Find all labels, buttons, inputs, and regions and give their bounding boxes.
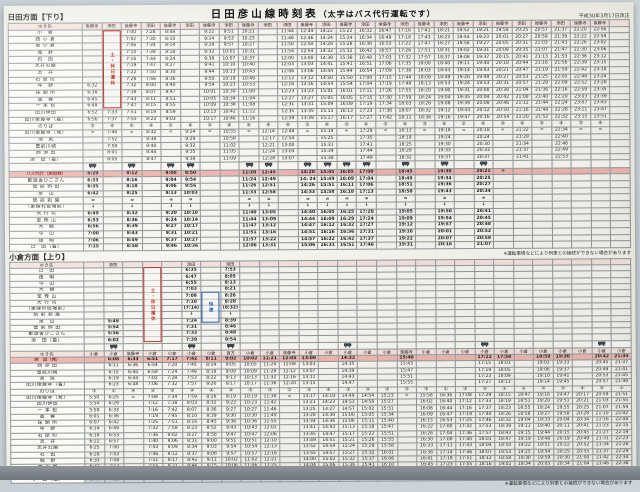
time-cell: 16:31 <box>318 243 338 250</box>
time-cell: 21:07 <box>592 404 612 410</box>
time-cell: 19:41 <box>553 373 573 379</box>
time-cell <box>220 162 240 169</box>
time-cell <box>493 161 513 168</box>
time-cell: 21:16 <box>592 417 612 423</box>
time-cell: 20:07 <box>435 235 455 242</box>
time-cell: 12:06 <box>260 431 280 437</box>
time-cell: 10:13 <box>222 476 242 482</box>
time-cell: 22:20 <box>551 94 571 101</box>
time-cell: 10:27 <box>181 237 201 244</box>
time-cell: 11:55 <box>260 419 280 425</box>
bus-icon <box>317 162 337 169</box>
bus-icon <box>435 161 455 168</box>
time-cell: 14:49 <box>338 393 358 399</box>
time-cell: 19:30 <box>435 168 455 175</box>
time-cell: 19:58 <box>553 411 573 417</box>
time-cell: 19:36 <box>435 182 455 189</box>
bus-icon <box>122 163 142 170</box>
time-cell: 10:03 <box>181 190 201 197</box>
time-cell: 22:05 <box>551 73 571 80</box>
time-cell: 15:24 <box>336 35 356 42</box>
time-cell: 16:05 <box>337 169 357 176</box>
time-cell: 19:22 <box>396 235 416 242</box>
time-cell: 21:51 <box>593 467 613 473</box>
time-cell: 14:57 <box>298 236 318 243</box>
time-cell: 17:27 <box>357 222 377 229</box>
bus-icon <box>161 163 181 170</box>
connection-note-mid: ※運転事情などにより列車との接続ができない場合があります <box>503 250 631 257</box>
time-cell <box>611 241 631 248</box>
time-cell: 13:00 <box>297 55 317 62</box>
time-cell: 19:50 <box>435 208 455 215</box>
time-cell: 14:33 <box>298 189 318 196</box>
time-cell: 15:45 <box>317 169 337 176</box>
time-cell: 17:00 <box>357 169 377 176</box>
time-cell: 16:22 <box>318 236 338 243</box>
time-cell: 15:40 <box>397 355 417 361</box>
time-cell: 13:27 <box>297 95 317 102</box>
time-cell <box>142 244 162 251</box>
time-cell: 15:50 <box>336 75 356 82</box>
time-cell: 18:51 <box>396 182 416 189</box>
time-cell: 12:49 <box>259 176 279 183</box>
time-cell: 15:06 <box>298 243 318 250</box>
time-cell: 22:58 <box>590 33 610 40</box>
time-cell: 20:58 <box>474 235 494 242</box>
time-cell: 13:45 <box>300 431 320 437</box>
time-cell: 13:11 <box>299 374 319 380</box>
time-cell: 23:51 <box>591 113 611 120</box>
time-cell: 19:55 <box>553 404 573 410</box>
time-cell: 22:40 <box>552 134 572 141</box>
down-direction-label: 日田方面【下り】 <box>8 12 68 23</box>
time-cell: 19:09 <box>495 474 515 480</box>
time-cell: 16:09 <box>318 216 338 223</box>
time-cell: 23:24 <box>590 73 610 80</box>
time-cell: 16:09 <box>337 176 357 183</box>
time-cell <box>376 161 396 168</box>
time-cell: 15:51 <box>318 182 338 189</box>
time-cell: 20:30 <box>554 455 574 461</box>
time-cell: 16:12 <box>318 223 338 230</box>
time-cell <box>455 242 475 249</box>
time-cell <box>124 476 144 482</box>
title-text: 日田彦山線時刻表 <box>211 8 319 21</box>
time-cell <box>103 244 123 251</box>
time-cell: 16:05 <box>337 95 357 102</box>
time-cell: 15:48 <box>358 475 378 481</box>
time-cell: 14:51 <box>298 229 318 236</box>
time-cell: 11:57 <box>240 236 260 243</box>
time-cell: 20:41 <box>474 208 494 215</box>
time-cell <box>416 242 436 249</box>
time-cell: 12:58 <box>259 189 279 196</box>
time-cell: 13:07 <box>299 368 319 374</box>
up-timetable-wrapper: ゆき先添田添田添田日 田6:357:53夜 明6:478:05今 山6:558:… <box>9 258 632 484</box>
time-cell: 8:28 <box>163 476 183 482</box>
time-cell: 18:58 <box>396 189 416 196</box>
time-cell: 16:11 <box>337 182 357 189</box>
time-cell: 13:05 <box>259 210 279 217</box>
time-cell: 13:12 <box>297 75 317 82</box>
time-cell: 20:42 <box>592 354 612 360</box>
time-cell: 16:42 <box>337 236 357 243</box>
time-cell: 20:45 <box>474 215 494 222</box>
station-label: 小 倉（着） <box>11 477 85 484</box>
time-cell: 20:21 <box>474 168 494 175</box>
time-cell: 14:26 <box>298 183 318 190</box>
time-cell: 14: 24 <box>298 176 318 183</box>
time-cell: 8:58 <box>123 244 143 251</box>
time-cell: 17:58 <box>494 354 514 360</box>
time-cell: 21:07 <box>474 242 494 249</box>
time-cell: 12:10 <box>261 438 281 444</box>
time-cell: 21:39 <box>551 33 571 40</box>
time-cell: 15:13 <box>319 475 339 481</box>
time-cell: 15:21 <box>339 437 359 443</box>
down-timetable: ゆき先後藤寺添田後藤寺添田後藤寺添田後藤寺添田後藤寺添田添田後藤寺添田後藤寺添田… <box>8 19 631 252</box>
time-cell: 17:04 <box>357 175 377 182</box>
time-cell: 21:27 <box>592 429 612 435</box>
time-cell: 11:20 <box>239 170 259 177</box>
time-cell: 11:24 <box>239 176 259 183</box>
time-cell: 21:34 <box>612 354 632 360</box>
service-notice-holiday-suspended: 土・休日運休 <box>102 30 121 109</box>
time-cell: 15:06 <box>339 418 359 424</box>
time-cell: 13:09 <box>259 216 279 223</box>
time-cell: 14:20 <box>298 169 318 176</box>
time-cell <box>591 241 611 248</box>
time-cell: 18:45 <box>396 169 416 176</box>
time-cell: 16:36 <box>337 229 357 236</box>
time-cell <box>103 163 123 170</box>
down-timetable-wrapper: ゆき先後藤寺添田後藤寺添田後藤寺添田後藤寺添田後藤寺添田添田後藤寺添田後藤寺添田… <box>8 19 631 252</box>
time-cell: 12:30 <box>261 469 281 475</box>
time-cell: 19:09 <box>396 215 416 222</box>
time-cell: 11:13 <box>241 476 261 482</box>
connection-note-bottom: ※運転事情などにより列車との接続ができない場合があります <box>505 480 633 487</box>
time-cell: 10:17 <box>181 223 201 230</box>
time-cell <box>572 241 592 248</box>
time-cell: 12:44 <box>297 28 317 35</box>
time-cell: 10:02 <box>240 356 260 362</box>
time-cell: 10:14 <box>181 217 201 224</box>
time-cell: 12:05 <box>280 356 300 362</box>
time-cell: 21:53 <box>551 53 571 60</box>
title-note: （太字はバス代行運転です） <box>319 9 436 19</box>
time-cell: 20:04 <box>553 417 573 423</box>
time-cell: 18:59 <box>533 354 553 360</box>
time-cell: 15:38 <box>336 55 356 62</box>
time-cell: 19:57 <box>435 222 455 229</box>
time-cell: 13:28 <box>299 412 319 418</box>
time-cell: 14:09 <box>300 469 320 475</box>
time-cell <box>377 242 397 249</box>
time-cell: 23:39 <box>590 93 610 100</box>
time-cell: 11:47 <box>240 223 260 230</box>
time-cell: 15:41 <box>339 469 359 475</box>
time-cell: 22:56 <box>590 26 610 33</box>
time-cell: 11:32 <box>260 375 280 381</box>
time-cell: 20:48 <box>474 222 494 229</box>
time-cell: 19:41 <box>515 474 535 480</box>
time-cell: 21:31 <box>593 436 613 442</box>
time-cell: 20:49 <box>592 366 612 372</box>
time-cell: 11:49 <box>260 412 280 418</box>
time-cell: 13:31 <box>259 243 279 250</box>
time-cell: 19:37 <box>553 367 573 373</box>
time-cell: 13:55 <box>300 450 320 456</box>
time-cell: 14:32 <box>338 355 358 361</box>
time-cell: 10:21 <box>181 230 201 237</box>
time-cell: 15:43 <box>339 475 359 481</box>
time-cell: 19:12 <box>396 222 416 229</box>
time-cell: 13:34 <box>299 419 319 425</box>
time-cell: 12:21 <box>259 142 279 149</box>
time-cell: 20:59 <box>592 392 612 398</box>
time-cell: 19:34 <box>435 175 455 182</box>
time-cell: 15:27 <box>339 450 359 456</box>
time-cell: 22:32 <box>552 114 572 121</box>
time-cell: 16:32 <box>337 222 357 229</box>
time-cell: 15:17 <box>339 431 359 437</box>
time-cell: 20:15 <box>553 430 573 436</box>
time-cell: 20:27 <box>474 181 494 188</box>
time-cell: 20:10 <box>534 474 554 480</box>
up-timetable: ゆき先添田添田添田日 田6:357:53夜 明6:478:05今 山6:558:… <box>9 258 632 484</box>
time-cell: 19:05 <box>396 209 416 216</box>
time-cell: 20:41 <box>554 474 574 480</box>
time-cell: 16:51 <box>337 242 357 249</box>
time-cell: 13:22 <box>259 236 279 243</box>
time-cell: 11:21 <box>260 356 280 362</box>
time-cell: 17:46 <box>357 242 377 249</box>
time-cell: 14:43 <box>338 374 358 380</box>
time-cell: 10:36 <box>181 243 201 250</box>
time-cell: 12:51 <box>259 183 279 190</box>
time-cell: 16:25 <box>337 209 357 216</box>
time-cell: 11:26 <box>239 183 259 190</box>
time-cell: 17:12 <box>475 354 495 360</box>
time-cell: 20:01 <box>435 229 455 236</box>
time-cell: 20:25 <box>474 175 494 182</box>
time-cell: 13:00 <box>299 356 319 362</box>
time-cell: 21:10 <box>592 410 612 416</box>
time-cell: 21:37 <box>551 27 571 34</box>
time-cell: 22:45 <box>612 473 632 479</box>
time-cell: 12:32 <box>261 475 281 481</box>
time-cell: 20:25 <box>554 448 574 454</box>
time-cell: 19:30 <box>553 354 573 360</box>
time-cell: 14:00 <box>300 456 320 462</box>
time-cell: 19:16 <box>396 229 416 236</box>
time-cell: 19:31 <box>396 242 416 249</box>
time-cell: 21:37 <box>593 448 613 454</box>
time-cell: 12:46 <box>297 35 317 42</box>
photo-of-timetable-poster: { "colors":{"pink_band":"#eeb5b0","red_n… <box>0 0 640 480</box>
time-cell: (7:14) <box>182 305 202 311</box>
station-label: 日 田（着） <box>10 244 84 251</box>
time-cell: 19:43 <box>435 188 455 195</box>
time-cell: 18:49 <box>396 175 416 182</box>
time-cell: 20:52 <box>474 228 494 235</box>
time-cell: 20:16 <box>435 242 455 249</box>
time-cell <box>220 243 240 250</box>
time-cell: 17:20 <box>357 209 377 216</box>
time-cell: 20:53 <box>592 373 612 379</box>
time-cell: 9:22 <box>202 476 222 482</box>
time-cell <box>278 162 298 169</box>
time-cell: 12:21 <box>261 457 281 463</box>
time-cell: 16:18 <box>337 189 357 196</box>
time-cell: 17:13 <box>357 189 377 196</box>
time-cell: 20:19 <box>553 436 573 442</box>
time-cell <box>201 243 221 250</box>
time-cell <box>279 243 299 250</box>
time-cell: 17:24 <box>357 216 377 223</box>
time-cell: 22:46 <box>552 140 572 147</box>
time-cell: 19:54 <box>435 215 455 222</box>
time-cell: 14:39 <box>338 368 358 374</box>
time-cell: 13:17 <box>299 393 319 399</box>
time-cell: 11:51 <box>240 230 260 237</box>
time-cell: 15:58 <box>318 189 338 196</box>
time-cell: 21:53 <box>593 473 613 479</box>
time-cell: 13:39 <box>298 115 318 122</box>
time-cell <box>552 241 572 248</box>
time-cell: 15:32 <box>339 456 359 462</box>
time-cell: (8:32) <box>221 305 241 311</box>
time-cell: 14:11 <box>300 475 320 481</box>
time-cell: 13:16 <box>259 230 279 237</box>
time-cell: 12:45 <box>259 169 279 176</box>
time-cell: 21:42 <box>593 455 613 461</box>
bus-icon <box>337 162 357 169</box>
time-cell: 21:11 <box>573 474 593 480</box>
time-cell: 11:40 <box>240 210 260 217</box>
time-cell: 11:46 <box>260 406 280 412</box>
time-cell: 12:16 <box>261 450 281 456</box>
time-cell: 15:49 <box>318 176 338 183</box>
time-cell: 14:44 <box>298 216 318 223</box>
service-notice-holiday-suspended: 土・休日運休 <box>143 267 162 342</box>
time-cell: 13:12 <box>259 223 279 230</box>
time-cell: 12:06 <box>240 243 260 250</box>
time-cell: 11:28 <box>260 368 280 374</box>
time-cell: 20:34 <box>474 188 494 195</box>
time-cell: 8:02 <box>144 476 164 482</box>
service-notice-rapid: 快速 <box>201 292 220 323</box>
time-cell <box>532 161 552 168</box>
time-cell: 14:40 <box>298 209 318 216</box>
time-cell: 11:38 <box>260 394 280 400</box>
time-cell: 23:12 <box>590 53 610 60</box>
time-cell: 12:17 <box>259 135 279 142</box>
time-cell <box>513 241 533 248</box>
time-cell <box>591 160 611 167</box>
time-cell <box>397 475 417 481</box>
time-cell: 16:16 <box>318 229 338 236</box>
time-cell: 13:49 <box>300 437 320 443</box>
time-cell: 14:47 <box>298 223 318 230</box>
time-cell: 11:33 <box>239 190 259 197</box>
time-cell: 8:53 <box>183 476 203 482</box>
time-cell: 13:25 <box>299 406 319 412</box>
time-cell <box>280 475 300 481</box>
time-cell <box>552 160 572 167</box>
time-cell: 17:06 <box>357 182 377 189</box>
time-cell: 20:39 <box>554 467 574 473</box>
time-cell: 17:31 <box>357 229 377 236</box>
time-cell: 11:44 <box>240 216 260 223</box>
time-cell: 9:46 <box>162 244 182 251</box>
time-cell: 7:15 <box>84 244 104 251</box>
time-cell <box>494 242 514 249</box>
time-cell: 16:05 <box>318 209 338 216</box>
timetable-paper: 日田方面【下り】 日田彦山線時刻表（太字はバス代行運転です） 平成30年3月17… <box>4 2 637 472</box>
time-cell: 16:17 <box>378 475 398 481</box>
time-cell <box>533 241 553 248</box>
time-cell: 17:37 <box>357 236 377 243</box>
time-cell: 16:29 <box>337 216 357 223</box>
time-cell: 19:47 <box>553 392 573 398</box>
time-cell: 14:57 <box>338 406 358 412</box>
time-cell: 10:10 <box>181 210 201 217</box>
